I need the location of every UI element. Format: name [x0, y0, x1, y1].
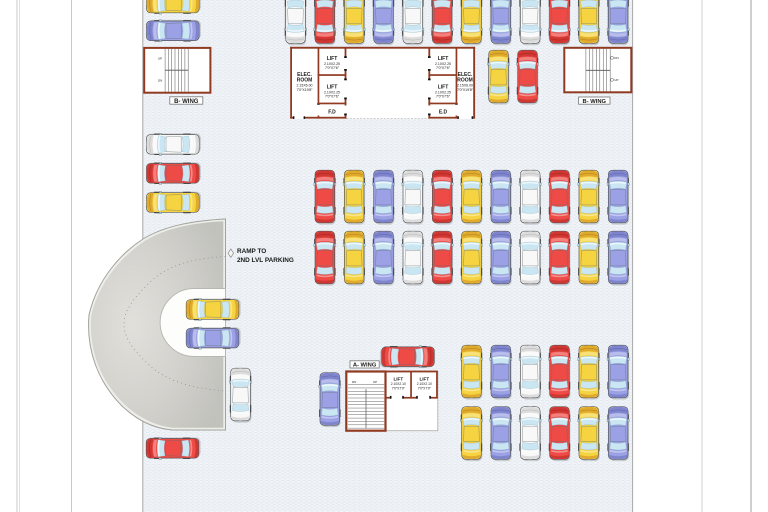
svg-text:DN: DN — [352, 380, 356, 384]
svg-text:7′0″X7′0″: 7′0″X7′0″ — [418, 386, 432, 390]
svg-text:7′0″X19′8″: 7′0″X19′8″ — [457, 88, 474, 92]
svg-text:UP: UP — [373, 380, 377, 384]
svg-text:A- WING: A- WING — [353, 363, 377, 369]
svg-text:2.15X6.00: 2.15X6.00 — [457, 84, 473, 88]
svg-text:UP: UP — [158, 57, 162, 61]
svg-text:7′0″X7′6″: 7′0″X7′6″ — [325, 66, 340, 70]
svg-text:RAMP TO: RAMP TO — [237, 248, 266, 255]
svg-text:B- WING: B- WING — [174, 99, 199, 105]
svg-text:7′0″X7′6″: 7′0″X7′6″ — [436, 95, 451, 99]
svg-text:UP: UP — [614, 78, 618, 82]
svg-text:E.D: E.D — [439, 110, 448, 116]
svg-text:2.15X6.00: 2.15X6.00 — [297, 84, 313, 88]
svg-text:LIFT: LIFT — [393, 377, 403, 382]
svg-text:7′0″X7′6″: 7′0″X7′6″ — [325, 95, 340, 99]
svg-text:7′0″X19′8″: 7′0″X19′8″ — [297, 88, 314, 92]
svg-text:DN: DN — [614, 56, 618, 60]
svg-text:F.D: F.D — [328, 110, 336, 116]
svg-text:B- WING: B- WING — [583, 99, 607, 105]
svg-text:7′0″X7′6″: 7′0″X7′6″ — [436, 66, 451, 70]
svg-text:LIFT: LIFT — [419, 377, 429, 382]
svg-text:2ND LVL PARKING: 2ND LVL PARKING — [237, 257, 294, 264]
svg-text:DN: DN — [158, 79, 162, 83]
svg-text:7′0″X7′0″: 7′0″X7′0″ — [392, 386, 406, 390]
